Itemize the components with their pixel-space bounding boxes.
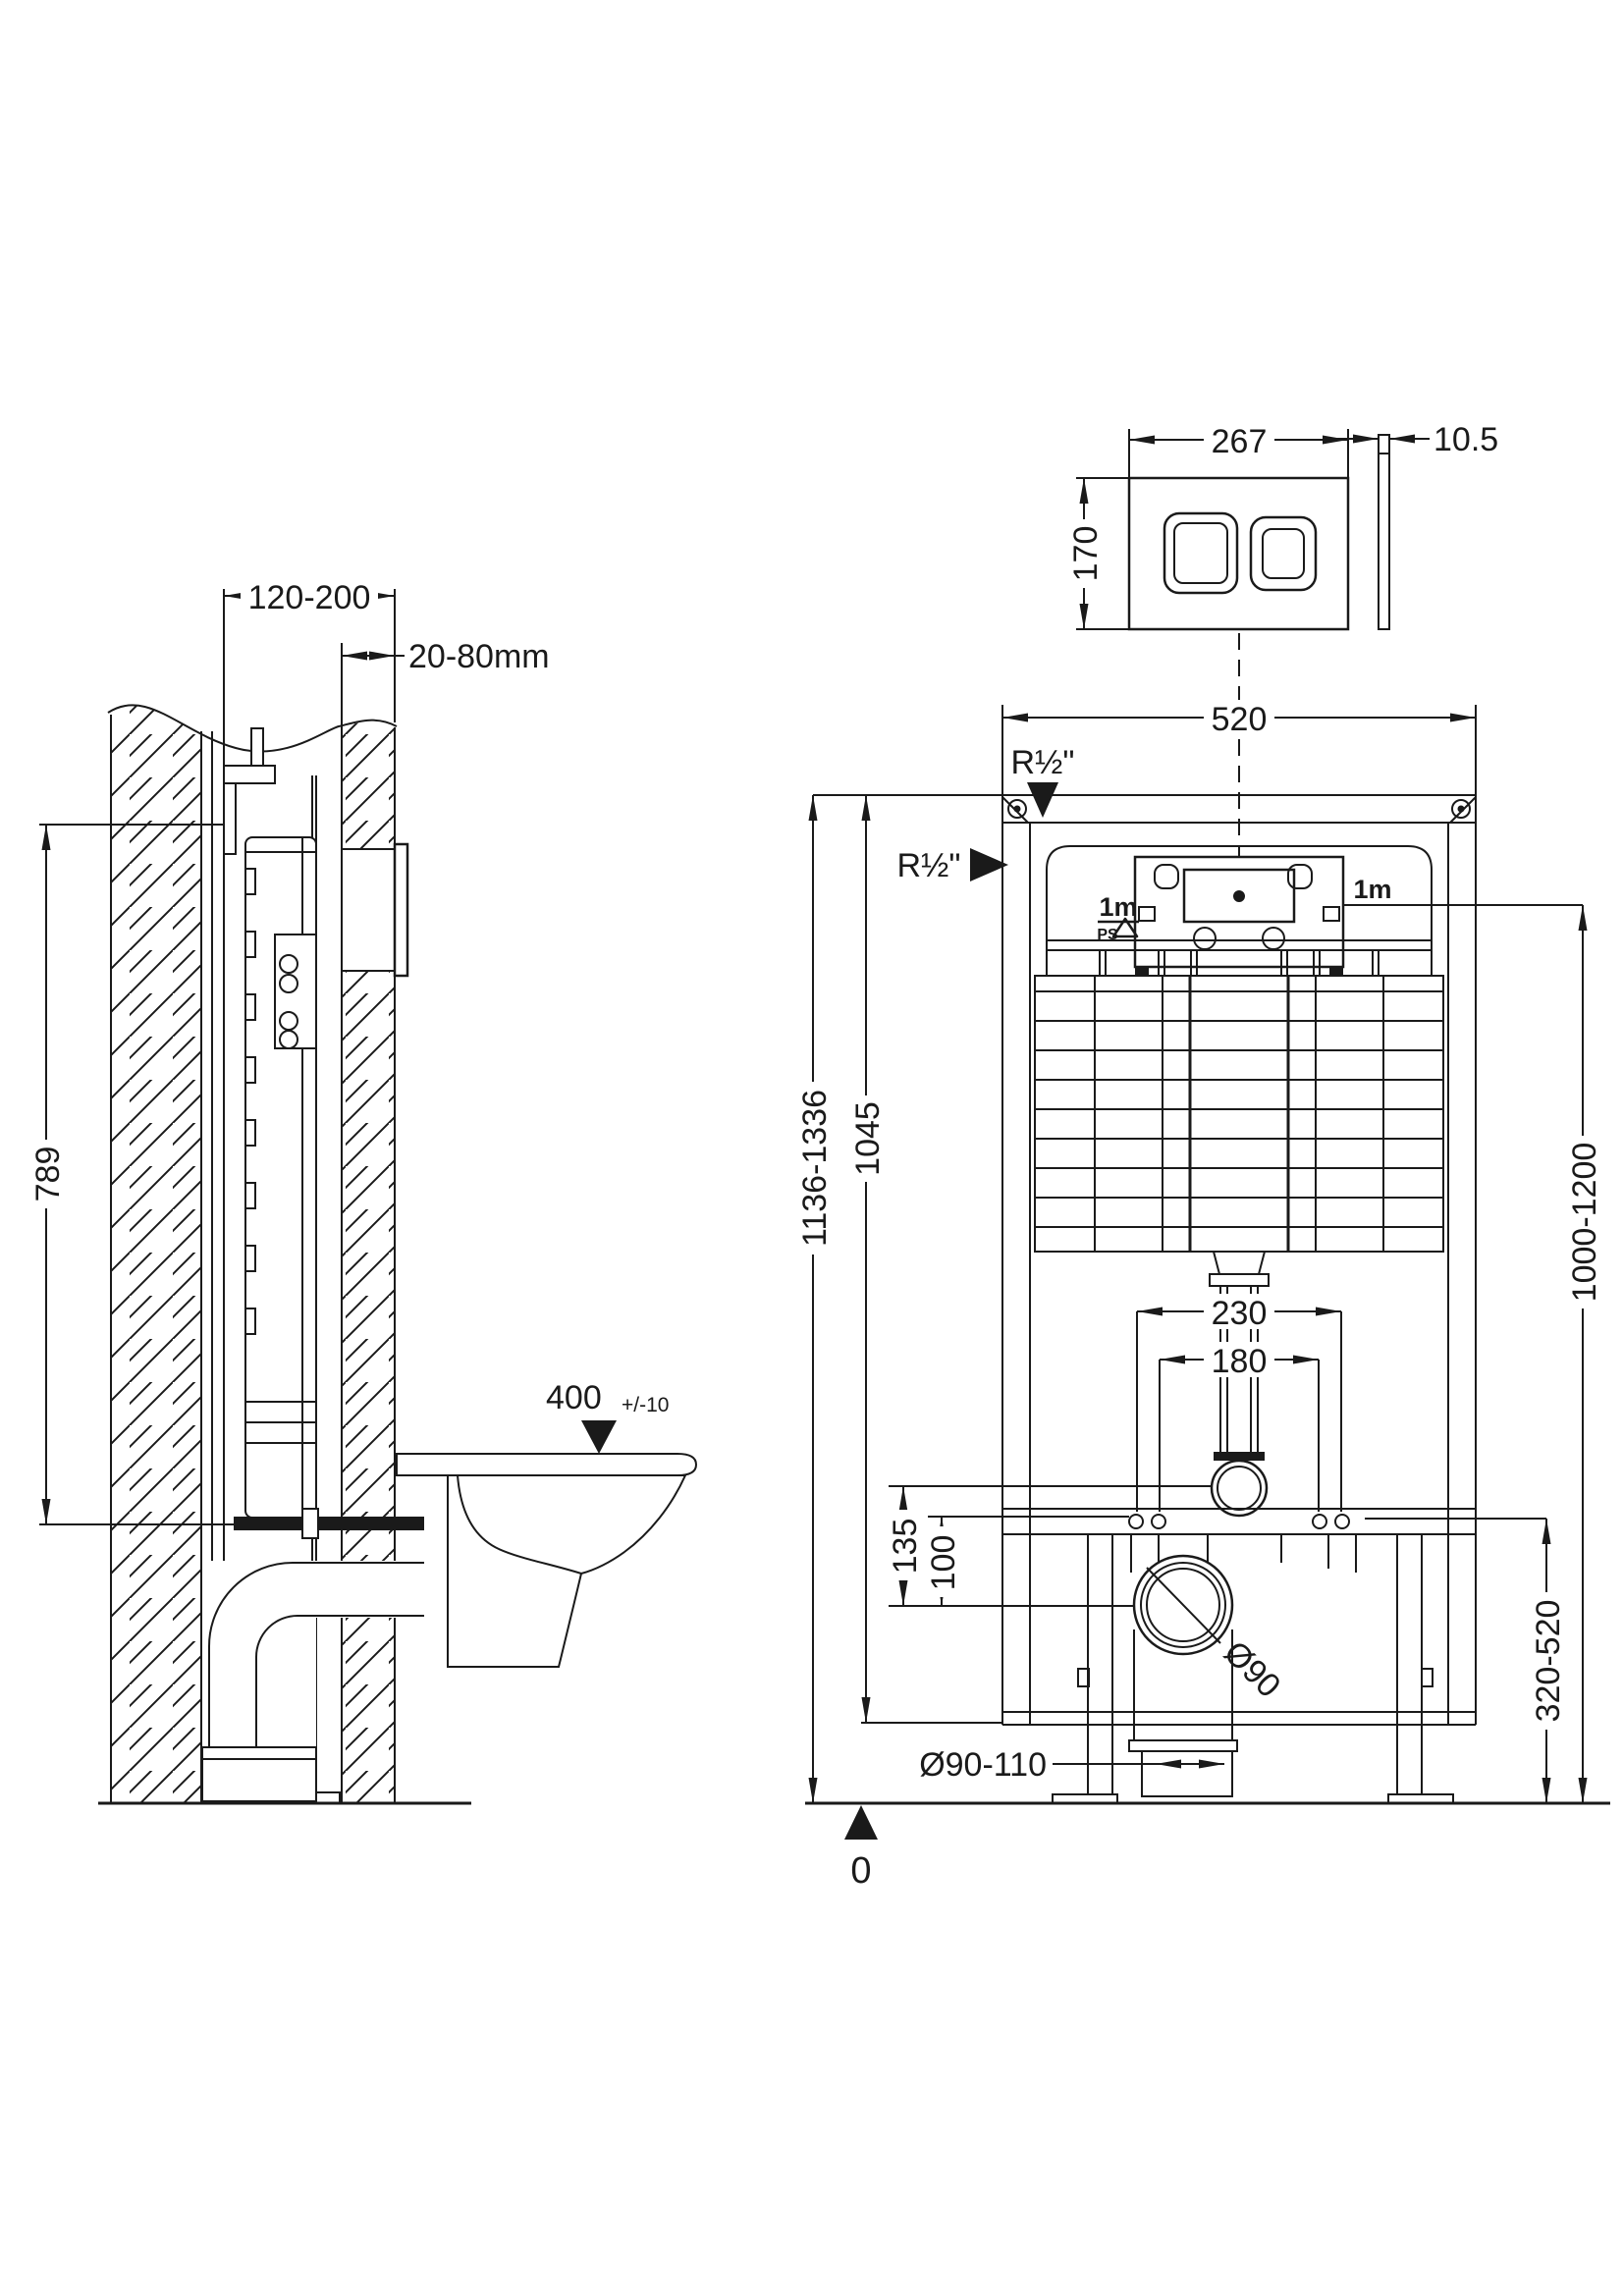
frame-height-label: 1045 [849, 1101, 887, 1176]
drain-diameter-label: Ø90 [1217, 1634, 1287, 1705]
supply-side-label: R½" [897, 847, 961, 884]
bolts-outer-label: 230 [1212, 1295, 1268, 1332]
bolts-inner-label: 180 [1212, 1343, 1268, 1380]
drain-height-label: 320-520 [1530, 1600, 1567, 1723]
finished-wall-label: 20-80mm [408, 638, 550, 675]
dim-drain-height: 320-520 [1365, 1519, 1567, 1803]
structural-wall-hatch [111, 706, 201, 1803]
centerline-dot [1234, 891, 1244, 901]
datum-triangle-icon [844, 1805, 878, 1840]
side-view: 400 +/-10 120-200 20-80mm 789 [28, 577, 696, 1803]
dim-plate-thickness: 10.5 [1327, 421, 1498, 458]
bend-offset-label: 135 [887, 1519, 924, 1575]
overall-height-label: 1136-1336 [796, 1090, 834, 1247]
frame-width-label: 520 [1212, 701, 1268, 738]
floor-datum-label: 0 [850, 1850, 871, 1892]
front-view: 1m PS 1m R½" R½" [98, 700, 1610, 1892]
flush-plate-side [342, 844, 407, 976]
toilet-bowl [397, 1454, 696, 1667]
flush-plate-edge [1379, 435, 1389, 629]
cistern-top-label: 789 [29, 1147, 67, 1202]
supply-top-label: R½" [1011, 744, 1075, 781]
supply-top-arrow-icon [1027, 782, 1058, 818]
floor-datum: 0 [98, 1803, 1610, 1892]
outlet-diameter-label: Ø90-110 [919, 1746, 1047, 1784]
technical-drawing-page: 400 +/-10 120-200 20-80mm 789 [0, 0, 1623, 2296]
dim-seat-height: 400 +/-10 [546, 1379, 669, 1454]
dim-finished-wall: 20-80mm [342, 638, 550, 726]
seat-height-tolerance-label: +/-10 [622, 1394, 669, 1416]
dim-plate-width: 267 [1129, 422, 1348, 478]
dim-overall-height: 1136-1336 [795, 795, 1002, 1803]
mounting-bracket [275, 934, 316, 1048]
dim-supply-height: 1000-1200 [1565, 905, 1603, 1803]
plate-width-label: 267 [1212, 423, 1268, 460]
hose-left-label: 1m [1099, 892, 1137, 922]
hose-right-label: 1m [1353, 875, 1391, 904]
seat-height-arrow-icon [581, 1420, 617, 1454]
flush-plate-detail: 267 170 10.5 [1066, 421, 1498, 891]
plate-height-label: 170 [1067, 526, 1105, 582]
dim-plate-height: 170 [1066, 478, 1129, 629]
supply-height-label: 1000-1200 [1566, 1143, 1603, 1303]
seat-height-label: 400 [546, 1379, 602, 1416]
plate-thickness-label: 10.5 [1434, 421, 1498, 458]
holes-offset-label: 100 [925, 1535, 962, 1591]
access-box [1135, 857, 1343, 976]
dim-holes-offset: 100 [924, 1517, 1129, 1606]
flush-pipe [1210, 1252, 1269, 1516]
cistern-tank-front [1035, 976, 1443, 1252]
drain-socket: Ø90 [1129, 1556, 1287, 1796]
frame-depth-label: 120-200 [248, 579, 371, 616]
technical-drawing: 400 +/-10 120-200 20-80mm 789 [0, 0, 1623, 2296]
flush-bend-outlet-icon [1212, 1461, 1267, 1516]
